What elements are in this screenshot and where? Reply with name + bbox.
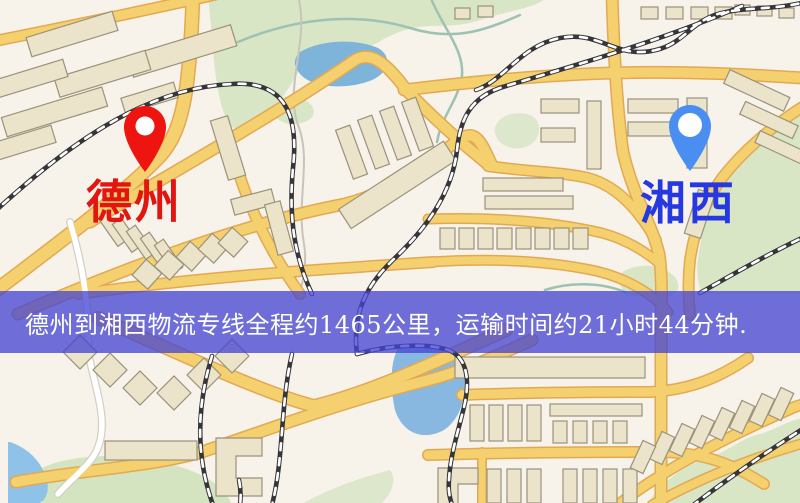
pin-hole [136, 117, 155, 136]
route-info-banner: 德州到湘西物流专线全程约1465公里，运输时间约21小时44分钟. [0, 291, 800, 353]
pin-shape [124, 106, 166, 172]
map-canvas [0, 0, 800, 503]
origin-label: 德州 [86, 179, 182, 225]
map-screenshot: 德州 湘西 德州到湘西物流专线全程约1465公里，运输时间约21小时44分钟. [0, 0, 800, 503]
destination-marker [662, 99, 718, 177]
pin-hole [678, 113, 702, 137]
map-pin-icon [662, 99, 718, 173]
map-pin-icon [117, 100, 173, 174]
origin-marker [117, 100, 173, 178]
destination-label: 湘西 [640, 180, 736, 226]
route-info-text: 德州到湘西物流专线全程约1465公里，运输时间约21小时44分钟. [0, 305, 747, 340]
